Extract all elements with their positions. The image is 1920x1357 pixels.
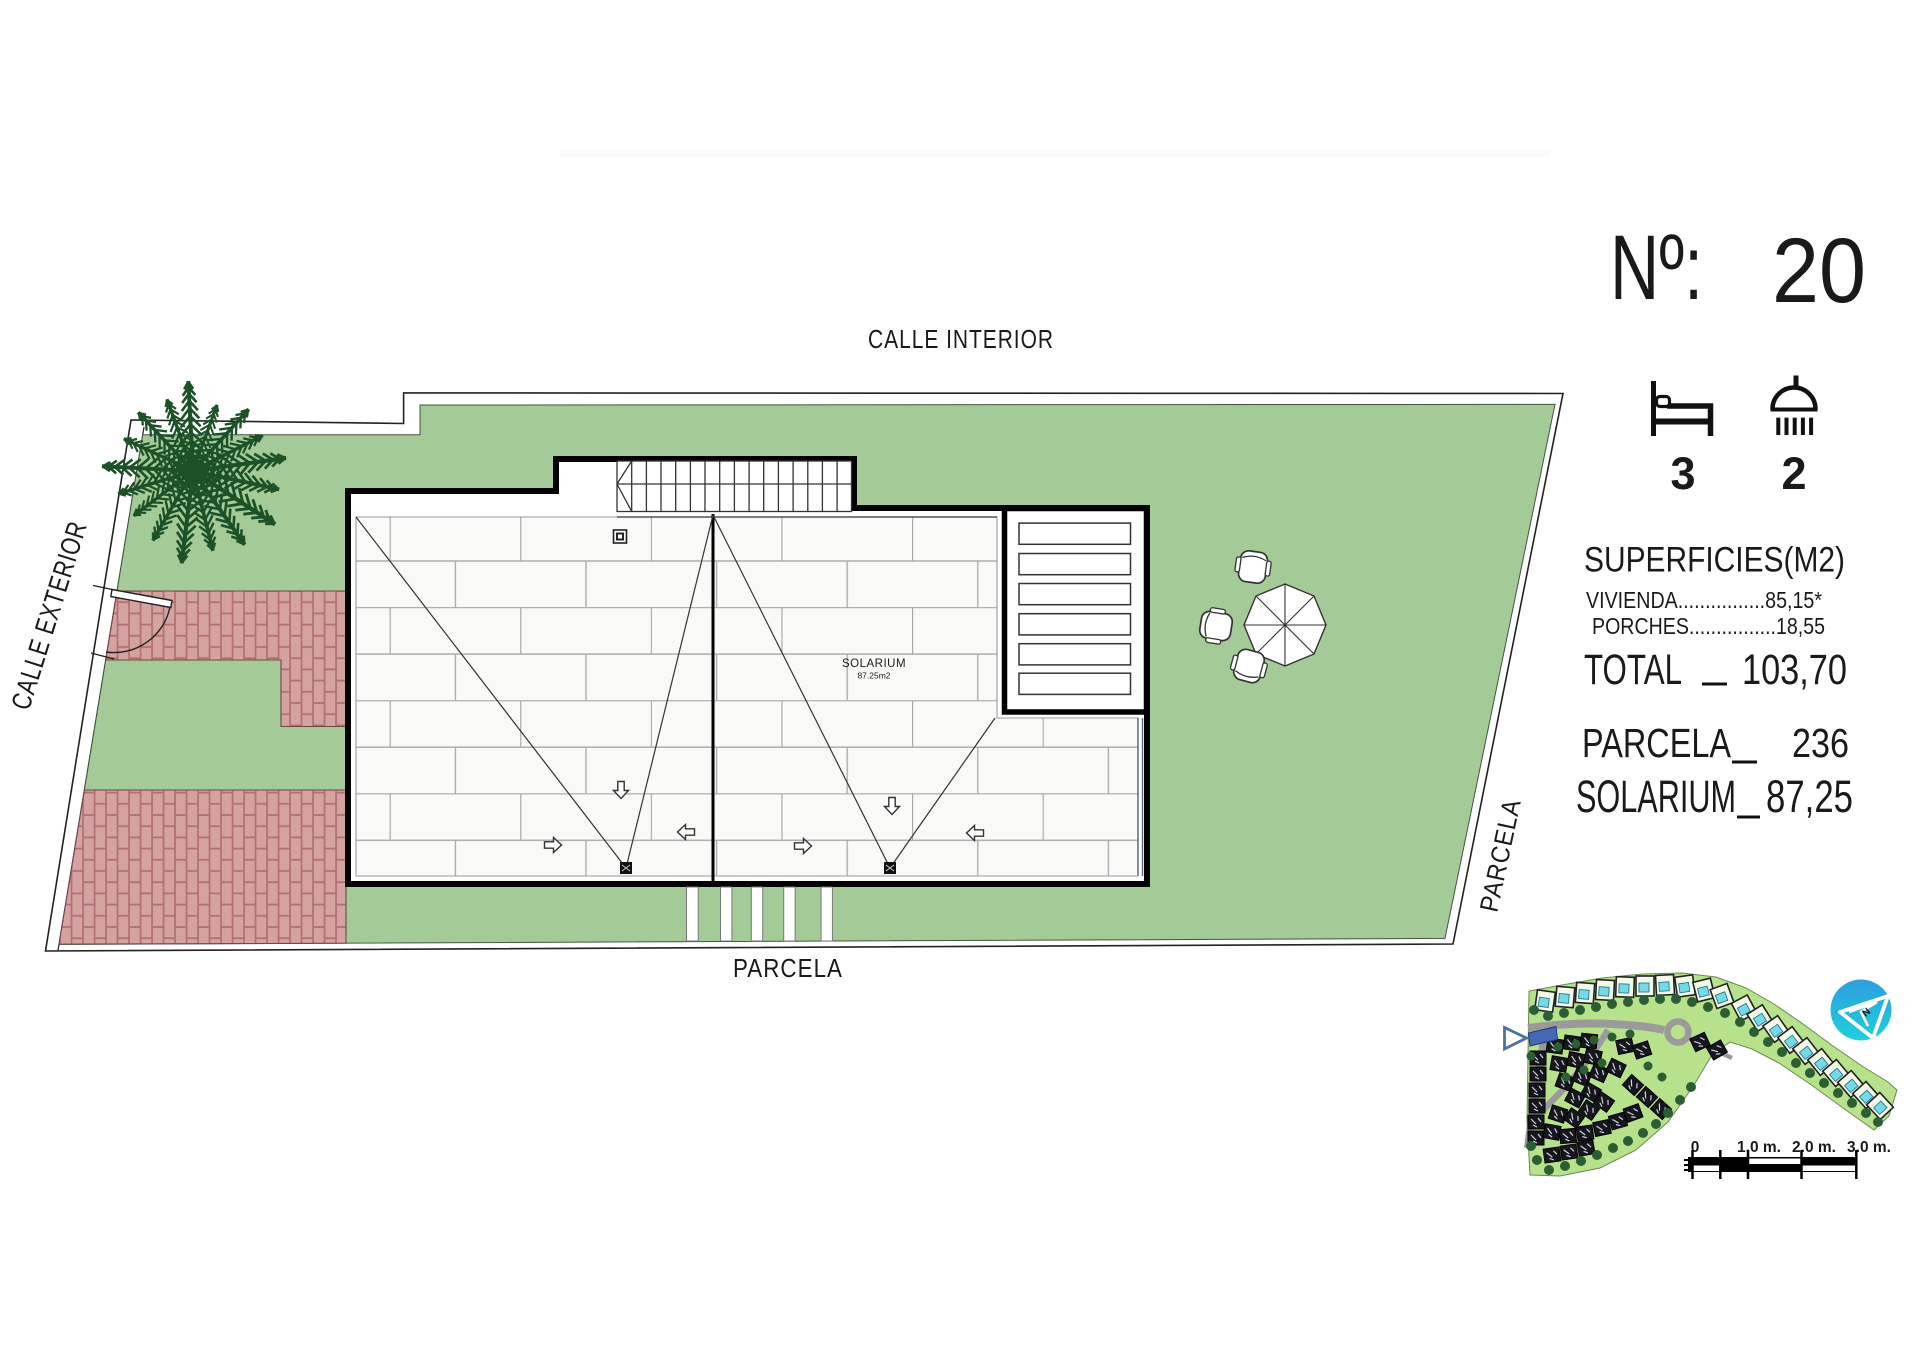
svg-text:Nº:: Nº: xyxy=(1610,217,1703,319)
svg-text:PARCELA: PARCELA xyxy=(1582,720,1732,766)
svg-text:87,25: 87,25 xyxy=(1766,771,1853,822)
svg-text:1.0 m.: 1.0 m. xyxy=(1737,1139,1781,1156)
svg-text:VIVIENDA................85,15*: VIVIENDA................85,15* xyxy=(1586,587,1822,613)
svg-text:103,70: 103,70 xyxy=(1742,647,1847,694)
svg-text:2: 2 xyxy=(1781,448,1806,499)
svg-text:PARCELA: PARCELA xyxy=(733,953,843,983)
svg-text:2.0 m.: 2.0 m. xyxy=(1792,1139,1836,1156)
svg-text:87.25m2: 87.25m2 xyxy=(857,671,890,681)
svg-text:TOTAL: TOTAL xyxy=(1584,647,1682,694)
svg-text:SOLARIUM: SOLARIUM xyxy=(842,658,906,670)
svg-text:236: 236 xyxy=(1792,720,1849,766)
svg-text:SUPERFICIES(M2): SUPERFICIES(M2) xyxy=(1584,541,1845,580)
svg-text:SOLARIUM: SOLARIUM xyxy=(1576,771,1736,822)
svg-text:PORCHES................18,55: PORCHES................18,55 xyxy=(1592,613,1825,639)
svg-text:20: 20 xyxy=(1772,220,1866,322)
svg-text:3.0 m.: 3.0 m. xyxy=(1847,1139,1891,1156)
svg-text:3: 3 xyxy=(1670,448,1695,499)
svg-text:CALLE INTERIOR: CALLE INTERIOR xyxy=(868,324,1054,354)
